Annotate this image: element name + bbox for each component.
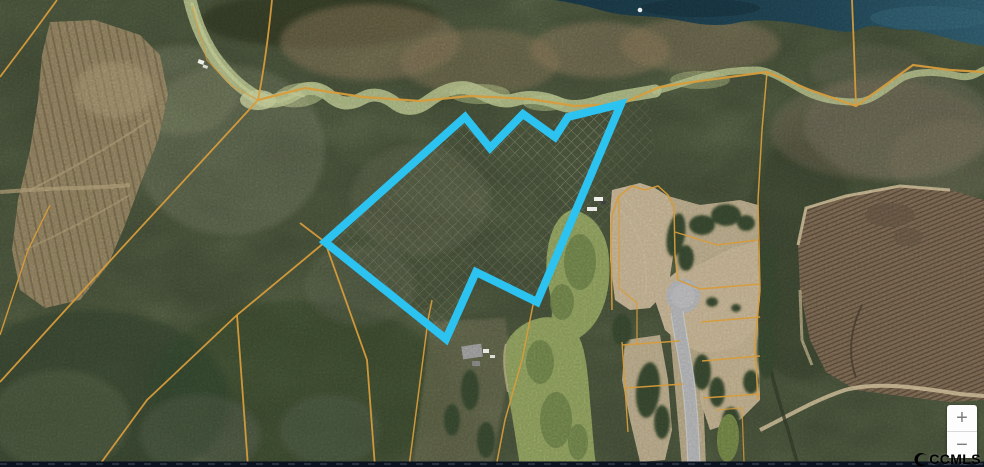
- ccmls-watermark: CCMLS: [913, 451, 981, 467]
- map-canvas[interactable]: [0, 0, 984, 467]
- crescent-swoosh-icon: [913, 452, 928, 467]
- map-viewport[interactable]: + − CCMLS: [0, 0, 984, 467]
- bottom-edge-bar: [0, 462, 984, 467]
- plus-icon: +: [956, 408, 968, 428]
- watermark-label: CCMLS: [929, 451, 981, 467]
- zoom-in-button[interactable]: +: [947, 405, 977, 431]
